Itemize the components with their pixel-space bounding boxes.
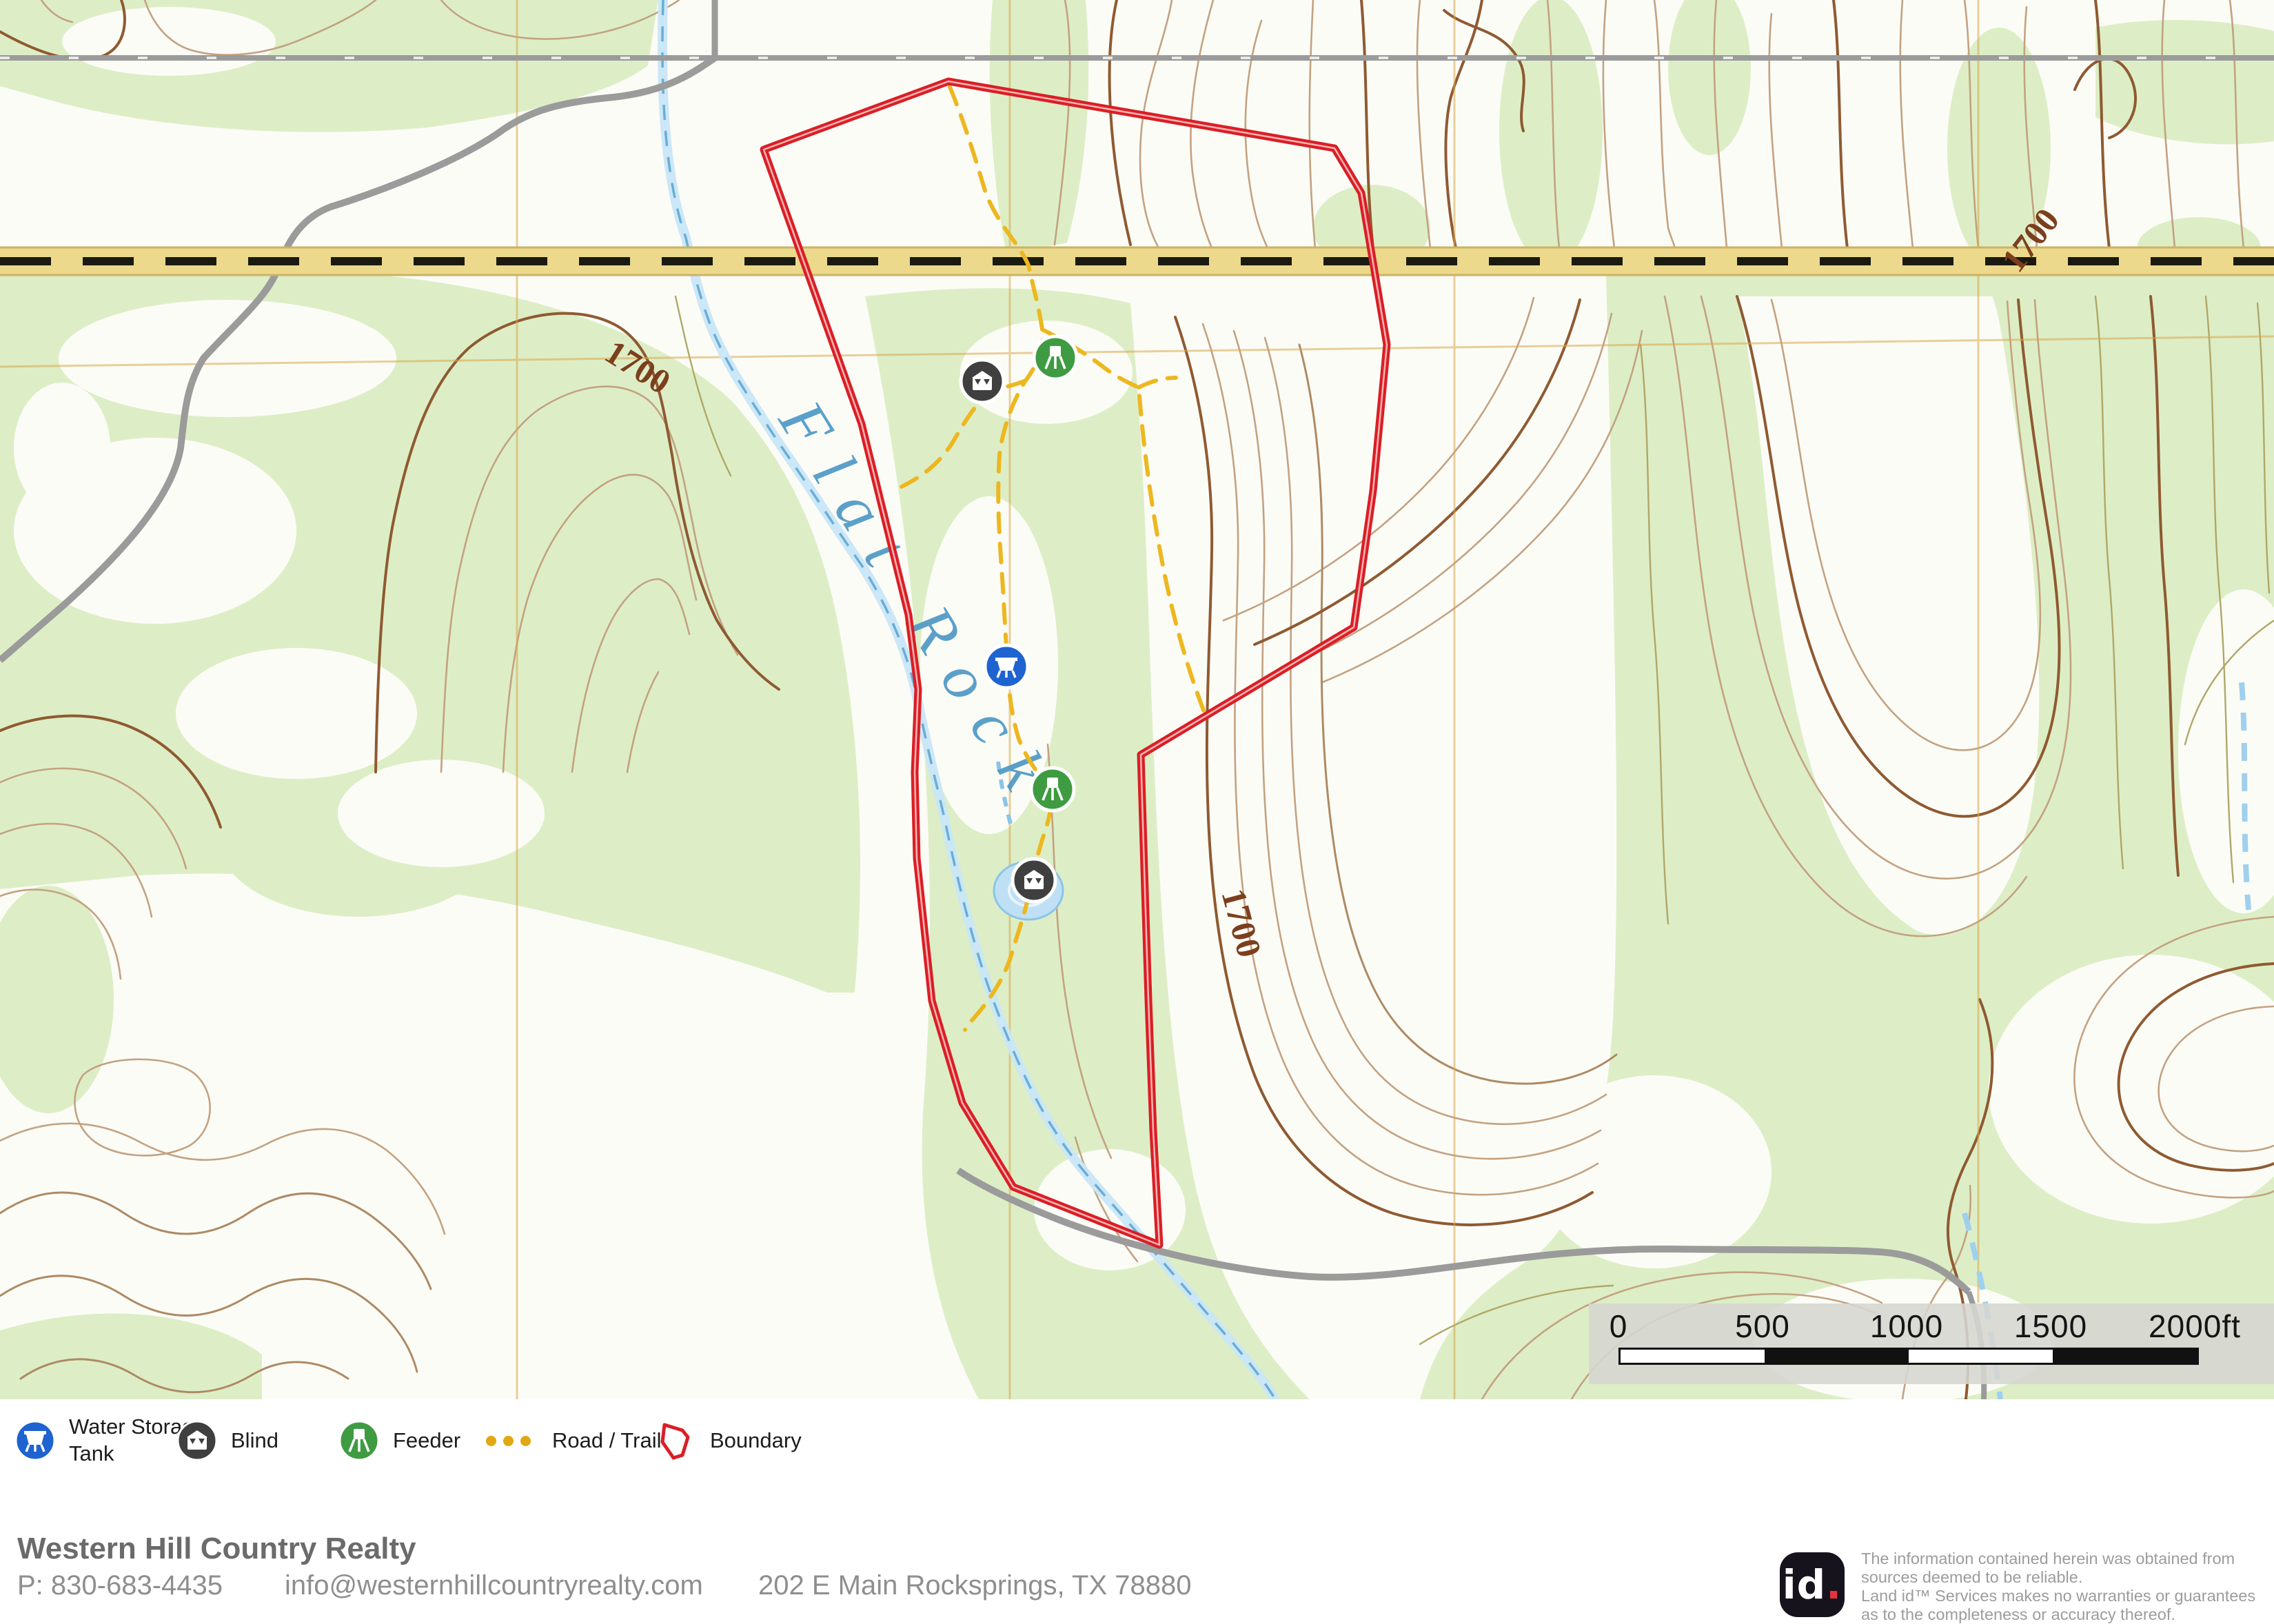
land-id-logo: id. <box>1780 1552 1845 1617</box>
email-address: info@westernhillcountryrealty.com <box>285 1570 703 1601</box>
scale-bar-segments <box>1618 1348 2199 1365</box>
logo-dot: . <box>1826 1561 1842 1608</box>
scale-label-1500: 1500 <box>2014 1308 2087 1345</box>
legend-label: Feeder <box>393 1428 460 1454</box>
scale-bar: 0 500 1000 1500 2000ft <box>1589 1303 2274 1384</box>
legend-item-boundary: Boundary <box>655 1399 802 1482</box>
map-legend: Water Storage Tank Blind Feeder Road / T… <box>0 1399 2274 1489</box>
disclaimer-text: The information contained herein was obt… <box>1861 1550 2268 1624</box>
marker-feeder-1[interactable] <box>1034 336 1077 379</box>
street-address: 202 E Main Rocksprings, TX 78880 <box>758 1570 1192 1601</box>
legend-label: Blind <box>231 1428 278 1454</box>
marker-feeder-2[interactable] <box>1031 768 1074 811</box>
scale-label-2000: 2000ft <box>2149 1308 2241 1345</box>
boundary-icon <box>655 1419 698 1462</box>
legend-label: Road / Trail <box>552 1428 662 1454</box>
water-storage-tank-icon <box>14 1419 57 1462</box>
scale-label-1000: 1000 <box>1870 1308 1943 1345</box>
marker-blind-1[interactable] <box>961 360 1004 403</box>
highway <box>0 247 2274 276</box>
scale-label-500: 500 <box>1735 1308 1790 1345</box>
marker-blind-2[interactable] <box>1013 859 1055 902</box>
legend-item-blind: Blind <box>176 1399 278 1482</box>
marker-water-storage-tank[interactable] <box>985 645 1028 688</box>
legend-item-road-trail: Road / Trail <box>486 1399 662 1482</box>
scale-label-0: 0 <box>1610 1308 1628 1345</box>
blind-icon <box>176 1419 219 1462</box>
page: 1700 1700 1700 Flat Rock <box>0 0 2274 1622</box>
legend-item-feeder: Feeder <box>338 1399 460 1482</box>
footer: Western Hill Country Realty P: 830-683-4… <box>0 1489 2274 1622</box>
logo-text: id <box>1783 1561 1826 1608</box>
feeder-icon <box>338 1419 380 1462</box>
map-canvas[interactable]: 1700 1700 1700 Flat Rock <box>0 0 2274 1399</box>
road-trail-icon <box>486 1436 540 1446</box>
legend-label: Boundary <box>710 1428 802 1454</box>
topo-map: 1700 1700 1700 Flat Rock <box>0 0 2274 1399</box>
company-name: Western Hill Country Realty <box>17 1532 416 1566</box>
phone-number: P: 830-683-4435 <box>17 1570 223 1601</box>
